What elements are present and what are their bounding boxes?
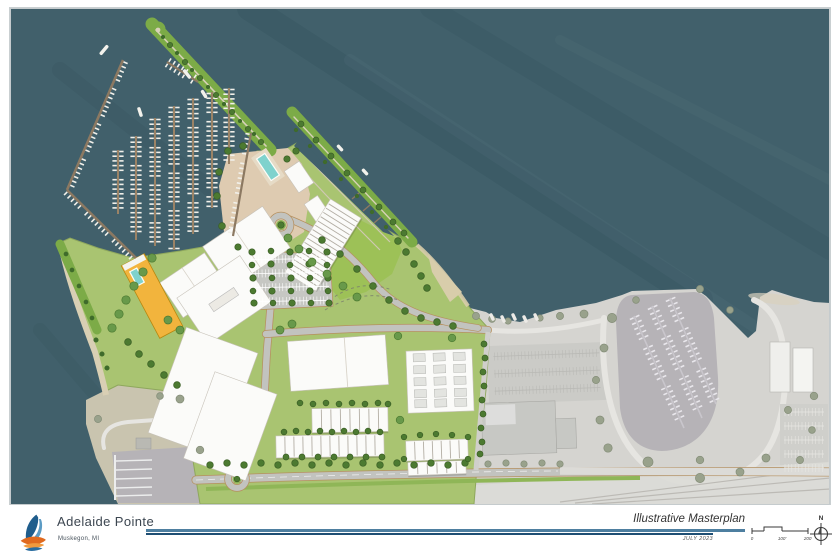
tree xyxy=(161,372,168,379)
project-location: Muskegon, MI xyxy=(58,536,99,542)
tree xyxy=(175,51,178,54)
tree xyxy=(370,210,374,214)
tree xyxy=(288,275,294,281)
tree xyxy=(478,425,484,431)
tree xyxy=(353,293,361,301)
tree xyxy=(307,288,313,294)
masterplan-rendering xyxy=(10,8,830,505)
tree xyxy=(485,461,491,467)
tree xyxy=(326,300,332,306)
tree xyxy=(477,451,483,457)
tree xyxy=(269,275,275,281)
north-arrow-icon: N xyxy=(808,511,834,551)
tree xyxy=(240,143,247,150)
tree xyxy=(287,249,293,255)
tree xyxy=(449,432,455,438)
warehouse-b xyxy=(287,335,388,392)
tree xyxy=(607,313,616,322)
tree xyxy=(809,427,816,434)
tree xyxy=(174,382,181,389)
tree xyxy=(269,288,275,294)
tree xyxy=(299,454,305,460)
tree xyxy=(600,344,608,352)
tree xyxy=(249,262,255,268)
tree xyxy=(362,401,368,407)
tree xyxy=(224,460,231,467)
tree xyxy=(270,300,276,306)
drawing-title: Illustrative Masterplan xyxy=(540,513,745,525)
tree xyxy=(250,288,256,294)
tree xyxy=(418,315,425,322)
tree xyxy=(148,254,156,262)
tree xyxy=(307,275,313,281)
tree xyxy=(376,204,382,210)
tree xyxy=(319,237,326,244)
tree xyxy=(284,156,290,162)
tree xyxy=(100,352,104,356)
tree xyxy=(313,137,319,143)
tree xyxy=(308,258,316,266)
svg-text:0: 0 xyxy=(751,536,754,541)
tree xyxy=(557,461,563,467)
tree xyxy=(386,297,393,304)
tree xyxy=(238,119,241,122)
tree xyxy=(479,439,485,445)
tree xyxy=(292,460,299,467)
title-rule-secondary xyxy=(146,533,713,535)
tree xyxy=(326,460,333,467)
tree xyxy=(365,428,371,434)
tree xyxy=(328,153,334,159)
tree xyxy=(281,429,287,435)
tree xyxy=(336,401,342,407)
tree xyxy=(784,406,791,413)
tree xyxy=(479,397,485,403)
tree xyxy=(295,245,303,253)
tree xyxy=(592,376,599,383)
existing-marina-basin xyxy=(616,292,718,451)
tree xyxy=(505,318,511,324)
tree xyxy=(125,339,132,346)
tree xyxy=(308,300,314,306)
tree xyxy=(251,300,257,306)
tree xyxy=(762,454,770,462)
tree xyxy=(310,401,316,407)
tree xyxy=(235,244,241,250)
tree xyxy=(360,187,366,193)
tree xyxy=(696,285,703,292)
tree xyxy=(394,332,402,340)
tree xyxy=(268,261,274,267)
tree xyxy=(64,252,68,256)
tree xyxy=(643,457,653,467)
tree xyxy=(604,444,612,452)
tree xyxy=(727,307,734,314)
tree xyxy=(450,323,457,330)
tree xyxy=(402,308,409,315)
tree xyxy=(390,219,396,225)
tree xyxy=(219,223,226,230)
tree xyxy=(796,456,803,463)
tree xyxy=(433,431,439,437)
tree xyxy=(258,139,263,144)
tree xyxy=(288,320,296,328)
tree xyxy=(395,238,402,245)
tree xyxy=(297,400,303,406)
tree xyxy=(214,193,221,200)
tree xyxy=(225,148,232,155)
tree xyxy=(696,456,704,464)
tree xyxy=(289,300,295,306)
unit-row-building xyxy=(406,439,469,462)
tree xyxy=(197,75,202,80)
scale-bar: 0 100' 200' xyxy=(750,522,812,544)
tree xyxy=(481,341,487,347)
tree xyxy=(325,288,331,294)
tree xyxy=(276,326,284,334)
tree xyxy=(249,249,255,255)
tree xyxy=(411,261,418,268)
tree xyxy=(70,268,74,272)
tree xyxy=(268,248,274,254)
tree xyxy=(580,310,588,318)
tree xyxy=(77,284,81,288)
tree xyxy=(401,456,407,462)
tree xyxy=(503,460,509,466)
tree xyxy=(288,288,294,294)
tree xyxy=(401,434,407,440)
tree xyxy=(401,230,407,236)
tree xyxy=(339,177,343,181)
tree xyxy=(379,454,385,460)
tree xyxy=(596,416,604,424)
tree xyxy=(293,148,299,154)
tree xyxy=(695,473,704,482)
tree xyxy=(323,270,331,278)
tree xyxy=(287,262,293,268)
tree xyxy=(278,222,284,228)
tree xyxy=(482,355,488,361)
tree xyxy=(229,109,234,114)
tree xyxy=(418,273,425,280)
tree xyxy=(377,462,384,469)
tree xyxy=(521,461,527,467)
adelaide-pointe-logo-icon xyxy=(14,512,50,552)
tree xyxy=(164,316,172,324)
tree xyxy=(539,460,545,466)
tree xyxy=(182,59,187,64)
tree xyxy=(275,462,282,469)
tree xyxy=(176,395,184,403)
tree xyxy=(354,266,361,273)
tree xyxy=(736,468,744,476)
tree xyxy=(284,234,292,242)
tree xyxy=(216,169,223,176)
tree xyxy=(337,251,344,258)
drawing-date: JULY 2023 xyxy=(613,536,713,542)
tree xyxy=(481,383,487,389)
tree xyxy=(317,428,323,434)
tree xyxy=(298,121,304,127)
title-block: Adelaide Pointe Muskegon, MI Illustrativ… xyxy=(0,505,840,560)
tree xyxy=(370,283,377,290)
tree xyxy=(306,248,312,254)
tree xyxy=(176,326,184,334)
tree xyxy=(241,462,248,469)
tree xyxy=(339,282,347,290)
tree xyxy=(245,126,250,131)
tree xyxy=(323,160,327,164)
unit-row-building xyxy=(312,407,388,433)
tree xyxy=(384,225,388,229)
tree xyxy=(633,297,640,304)
tree xyxy=(161,35,164,38)
masterplan-sheet: Adelaide Pointe Muskegon, MI Illustrativ… xyxy=(0,0,840,560)
tree xyxy=(130,282,138,290)
tree xyxy=(305,429,311,435)
tree xyxy=(375,400,381,406)
tree xyxy=(308,144,312,148)
tree xyxy=(363,454,369,460)
tree xyxy=(417,432,423,438)
tree xyxy=(190,68,193,71)
tree xyxy=(480,369,486,375)
tree xyxy=(234,476,240,482)
tree xyxy=(213,92,218,97)
tree xyxy=(252,132,255,135)
tree xyxy=(355,194,359,198)
tree xyxy=(315,454,321,460)
tree xyxy=(465,456,471,462)
tree xyxy=(360,460,367,467)
tree xyxy=(115,310,123,318)
tree xyxy=(323,400,329,406)
tree xyxy=(206,85,209,88)
tree xyxy=(448,334,456,342)
tree xyxy=(94,415,101,422)
svg-text:N: N xyxy=(819,515,824,522)
boat-storage-grid-building xyxy=(406,349,474,413)
tree xyxy=(377,429,383,435)
tree xyxy=(250,275,256,281)
tree xyxy=(90,316,94,320)
tree xyxy=(445,462,452,469)
title-rule-primary xyxy=(146,529,745,532)
svg-text:100': 100' xyxy=(778,536,787,541)
tree xyxy=(424,285,431,292)
tree xyxy=(207,462,214,469)
tree xyxy=(222,102,225,105)
tree xyxy=(157,393,164,400)
tree xyxy=(258,460,265,467)
tree xyxy=(394,460,401,467)
tree xyxy=(411,462,418,469)
tree xyxy=(428,460,435,467)
tree xyxy=(343,462,350,469)
tree xyxy=(136,351,143,358)
tree xyxy=(309,462,316,469)
tree xyxy=(84,300,88,304)
tree xyxy=(293,428,299,434)
tree xyxy=(353,429,359,435)
tree xyxy=(122,296,130,304)
tree xyxy=(344,170,350,176)
tree xyxy=(329,429,335,435)
tree xyxy=(385,401,391,407)
project-name: Adelaide Pointe xyxy=(57,514,154,529)
tree xyxy=(331,454,337,460)
tree xyxy=(94,338,98,342)
tree xyxy=(472,312,479,319)
tree xyxy=(196,446,204,454)
tree xyxy=(324,249,330,255)
tree xyxy=(480,411,486,417)
tree xyxy=(324,262,330,268)
tree xyxy=(341,428,347,434)
tree xyxy=(465,434,471,440)
tree xyxy=(396,416,404,424)
tree xyxy=(434,319,441,326)
tree xyxy=(167,42,172,47)
tree xyxy=(105,366,109,370)
tree xyxy=(294,128,298,132)
tree xyxy=(810,392,818,400)
tree xyxy=(283,454,289,460)
tree xyxy=(139,268,147,276)
tree xyxy=(148,361,155,368)
tree xyxy=(403,249,410,256)
tree xyxy=(556,312,563,319)
tree xyxy=(108,324,116,332)
tree xyxy=(349,400,355,406)
tree xyxy=(347,454,353,460)
